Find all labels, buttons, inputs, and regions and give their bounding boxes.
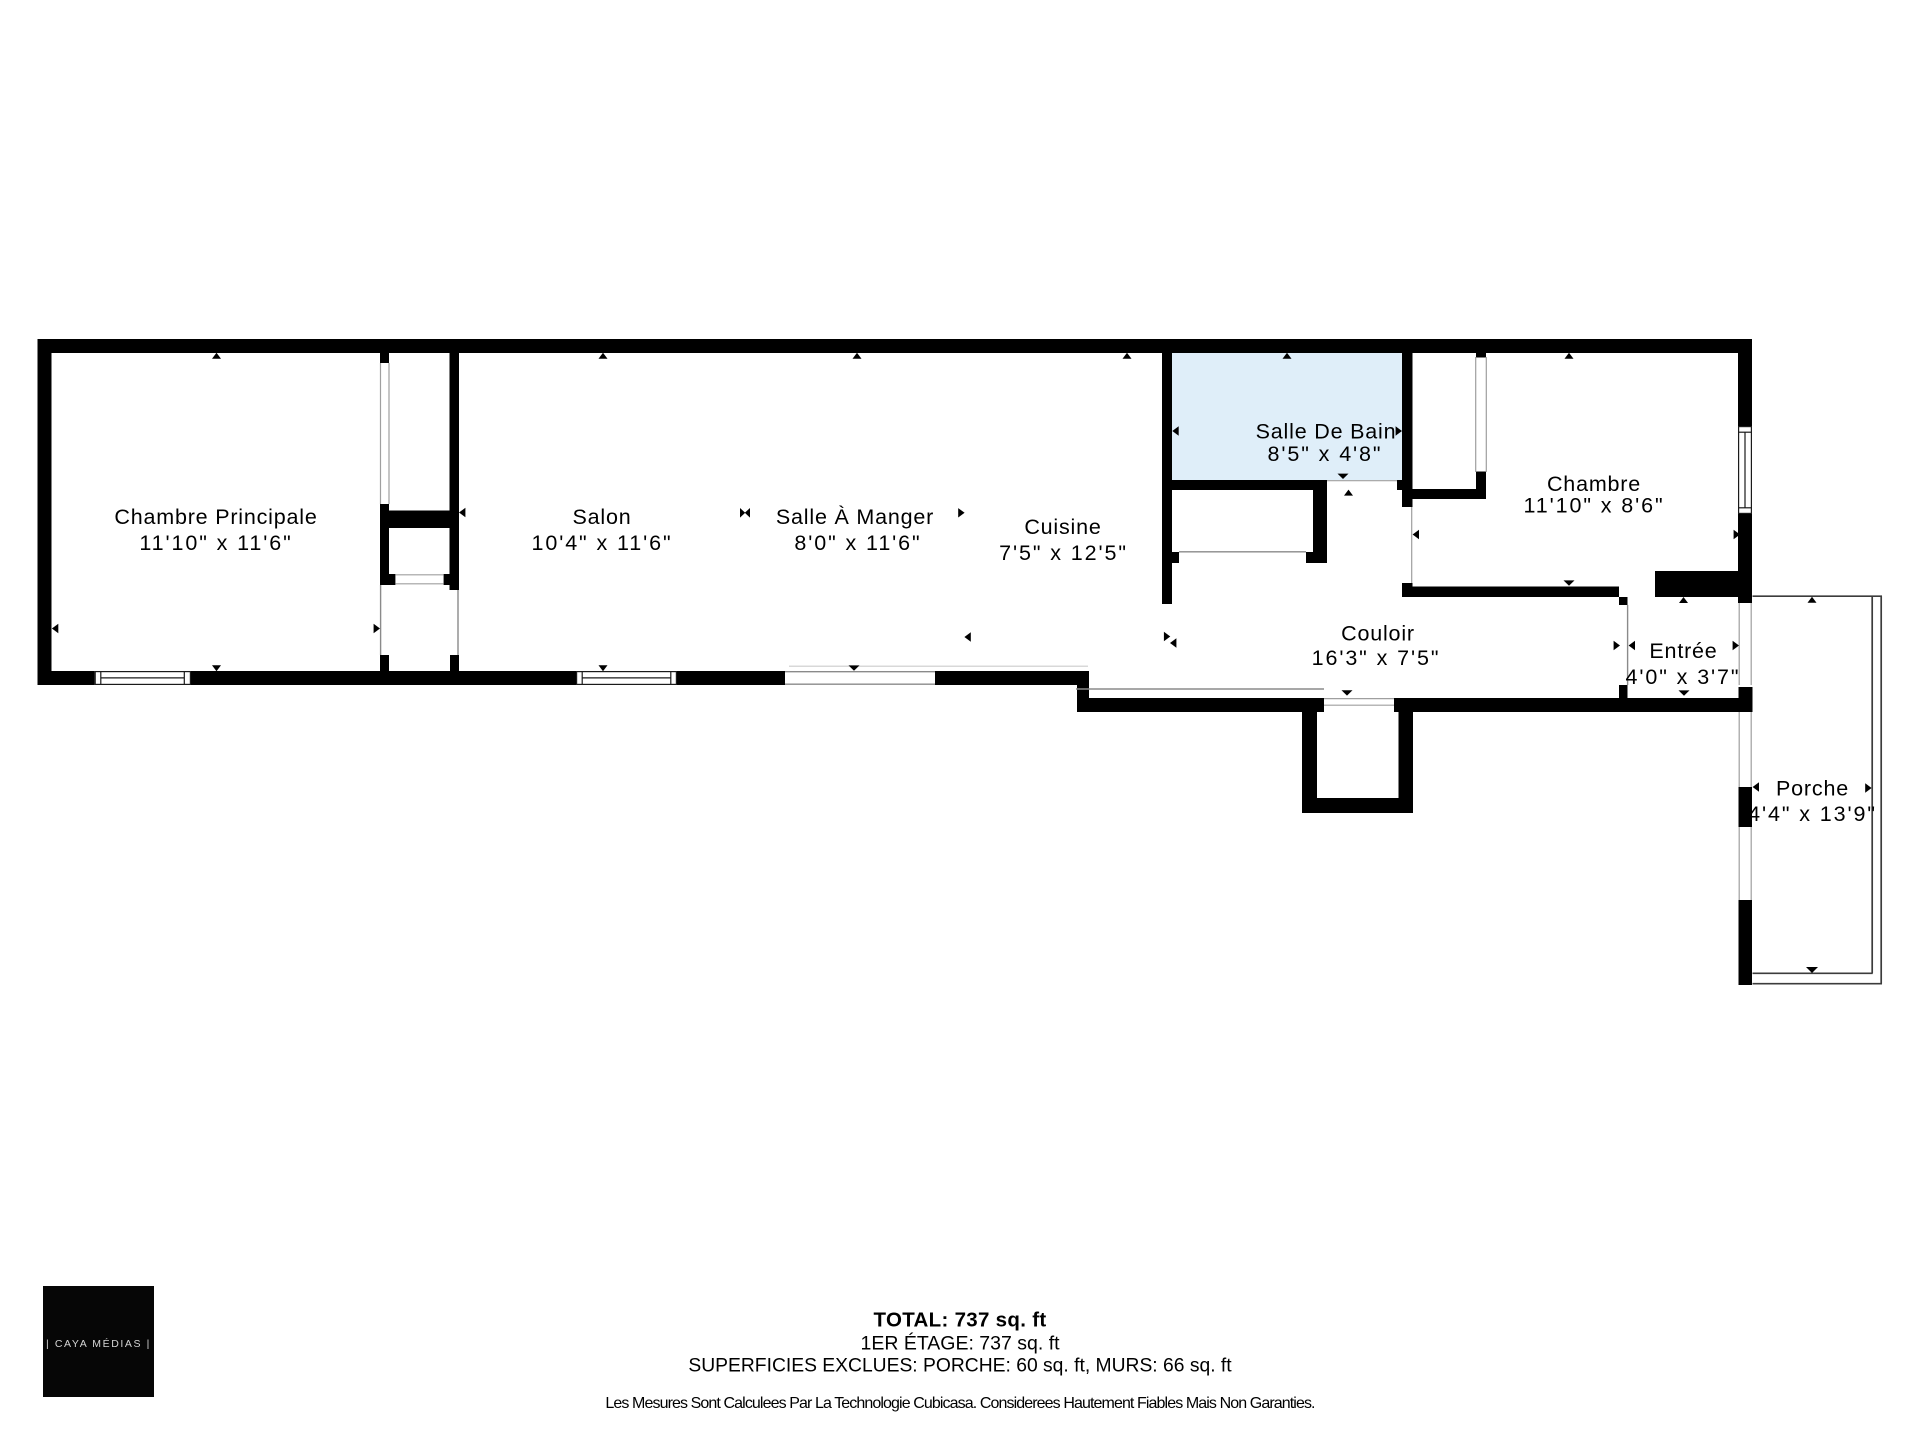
svg-text:Salle De Bain: Salle De Bain — [1256, 420, 1397, 444]
svg-text:Chambre: Chambre — [1547, 472, 1641, 496]
svg-text:Cuisine: Cuisine — [1024, 515, 1101, 539]
svg-text:4'0" x 3'7": 4'0" x 3'7" — [1626, 665, 1741, 689]
svg-text:Chambre Principale: Chambre Principale — [114, 505, 317, 529]
svg-text:11'10" x 8'6": 11'10" x 8'6" — [1523, 494, 1664, 518]
svg-text:1ER ÉTAGE: 737 sq. ft: 1ER ÉTAGE: 737 sq. ft — [860, 1332, 1060, 1355]
svg-text:4'4" x 13'9": 4'4" x 13'9" — [1748, 802, 1877, 826]
svg-text:Porche: Porche — [1776, 777, 1849, 801]
svg-text:SUPERFICIES EXCLUES: PORCHE: 6: SUPERFICIES EXCLUES: PORCHE: 60 sq. ft, … — [688, 1356, 1232, 1377]
svg-text:Salon: Salon — [573, 505, 632, 529]
svg-text:7'5" x 12'5": 7'5" x 12'5" — [999, 541, 1128, 565]
svg-text:16'3" x 7'5": 16'3" x 7'5" — [1312, 646, 1441, 670]
svg-text:Les Mesures Sont Calculees Par: Les Mesures Sont Calculees Par La Techno… — [605, 1395, 1314, 1412]
svg-text:10'4" x 11'6": 10'4" x 11'6" — [531, 531, 672, 555]
svg-text:8'5" x 4'8": 8'5" x 4'8" — [1268, 442, 1383, 466]
svg-text:Couloir: Couloir — [1341, 622, 1415, 646]
svg-text:11'10" x 11'6": 11'10" x 11'6" — [139, 531, 292, 555]
svg-text:Salle À Manger: Salle À Manger — [776, 504, 934, 529]
svg-text:TOTAL: 737 sq. ft: TOTAL: 737 sq. ft — [874, 1309, 1047, 1332]
svg-text:| CAYA MÉDIAS |: | CAYA MÉDIAS | — [46, 1337, 151, 1350]
svg-text:Entrée: Entrée — [1649, 639, 1717, 663]
svg-text:8'0" x 11'6": 8'0" x 11'6" — [794, 531, 921, 555]
